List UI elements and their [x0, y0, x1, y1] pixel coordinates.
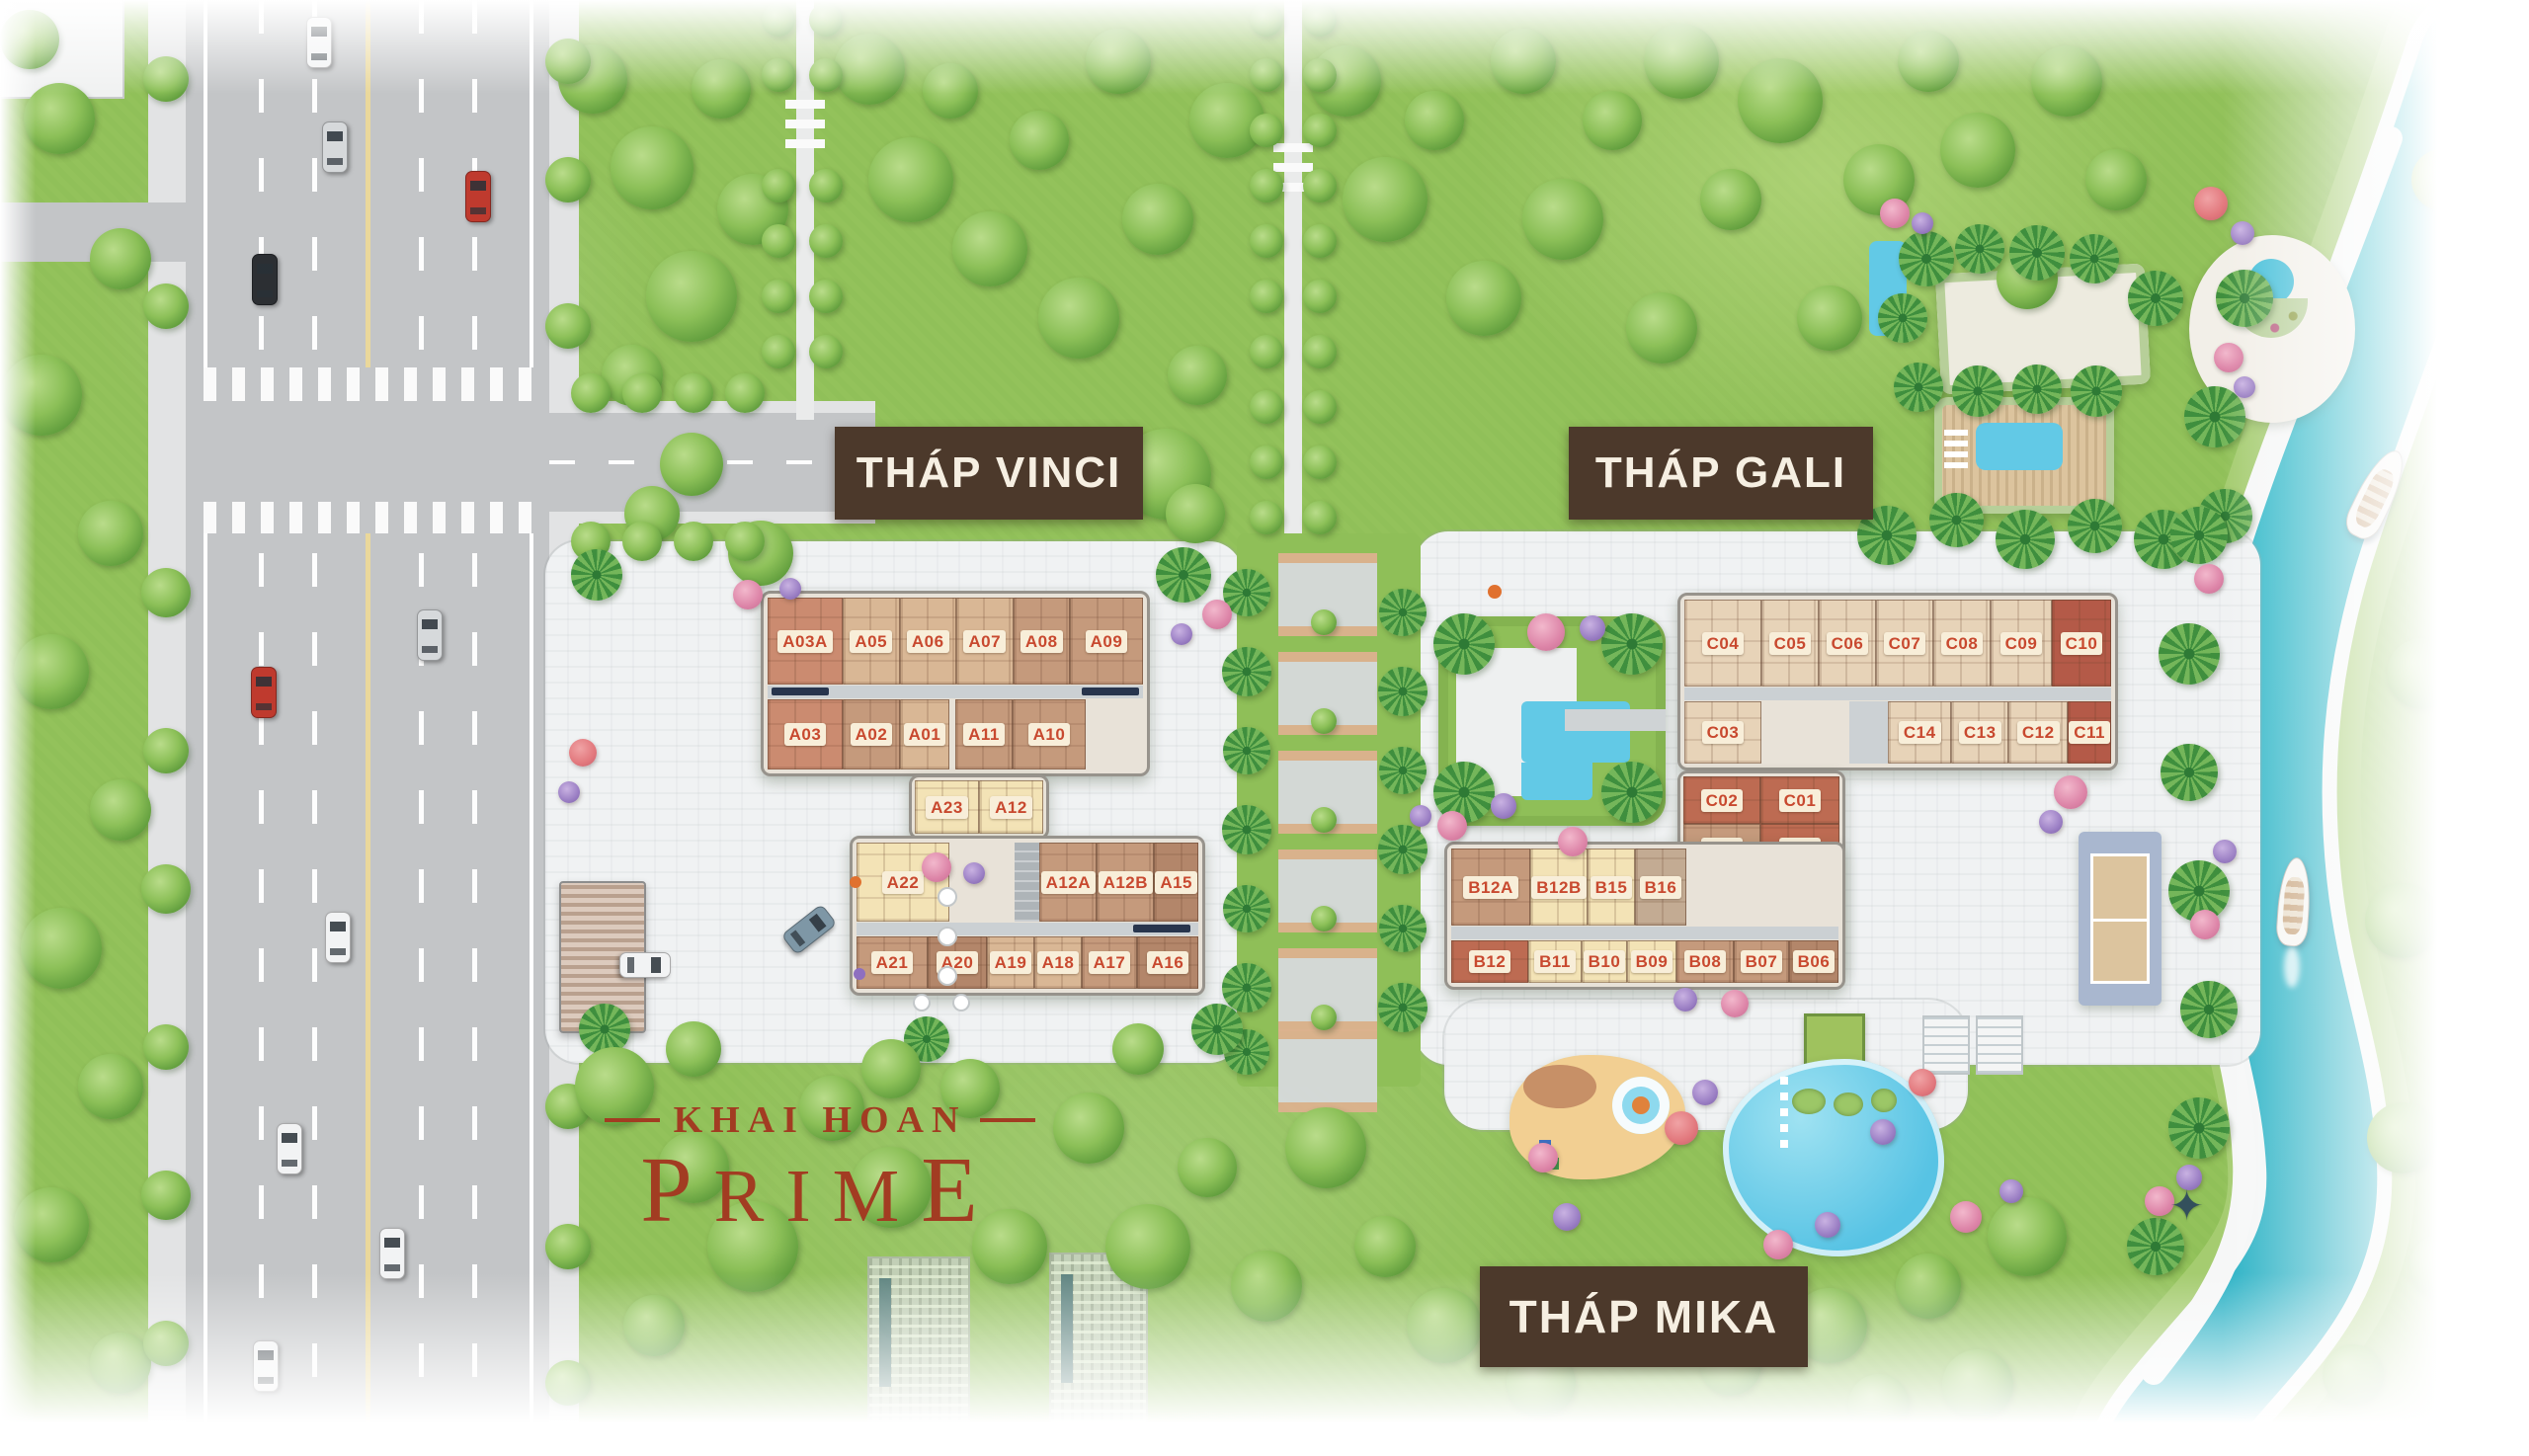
yacht-deck	[2282, 877, 2305, 935]
car-icon	[252, 254, 278, 305]
car-icon	[277, 1123, 302, 1174]
car-icon	[306, 17, 332, 68]
site-plan-map: A03AA05A06A07A08A09 A03A02A01 A11A10 A23…	[0, 0, 2529, 1456]
logo-rule	[605, 1118, 660, 1122]
logo-top-line: KHAI HOAN	[603, 1098, 1037, 1142]
tower-label-gali: THÁP GALI	[1569, 427, 1873, 520]
tower-label-gali-text: THÁP GALI	[1595, 448, 1846, 498]
cars-layer	[0, 0, 2529, 1456]
tower-label-vinci-text: THÁP VINCI	[857, 448, 1122, 498]
car-icon	[253, 1340, 279, 1392]
logo-brand-top: KHAI HOAN	[674, 1098, 967, 1142]
car-icon	[325, 912, 351, 963]
logo-rule	[980, 1118, 1035, 1122]
tower-label-vinci: THÁP VINCI	[835, 427, 1143, 520]
car-icon	[417, 609, 443, 661]
tower-label-mika: THÁP MIKA	[1480, 1266, 1808, 1367]
logo-brand-main: PRIME	[603, 1144, 1037, 1237]
compass-icon: ✦	[2169, 1181, 2204, 1230]
car-icon	[619, 952, 671, 978]
car-icon	[781, 904, 838, 956]
project-logo: KHAI HOAN PRIME	[603, 1098, 1037, 1237]
car-icon	[251, 667, 277, 718]
boat-wake	[2284, 946, 2300, 988]
tower-label-mika-text: THÁP MIKA	[1509, 1290, 1779, 1343]
car-icon	[465, 171, 491, 222]
car-icon	[379, 1228, 405, 1279]
car-icon	[322, 121, 348, 173]
